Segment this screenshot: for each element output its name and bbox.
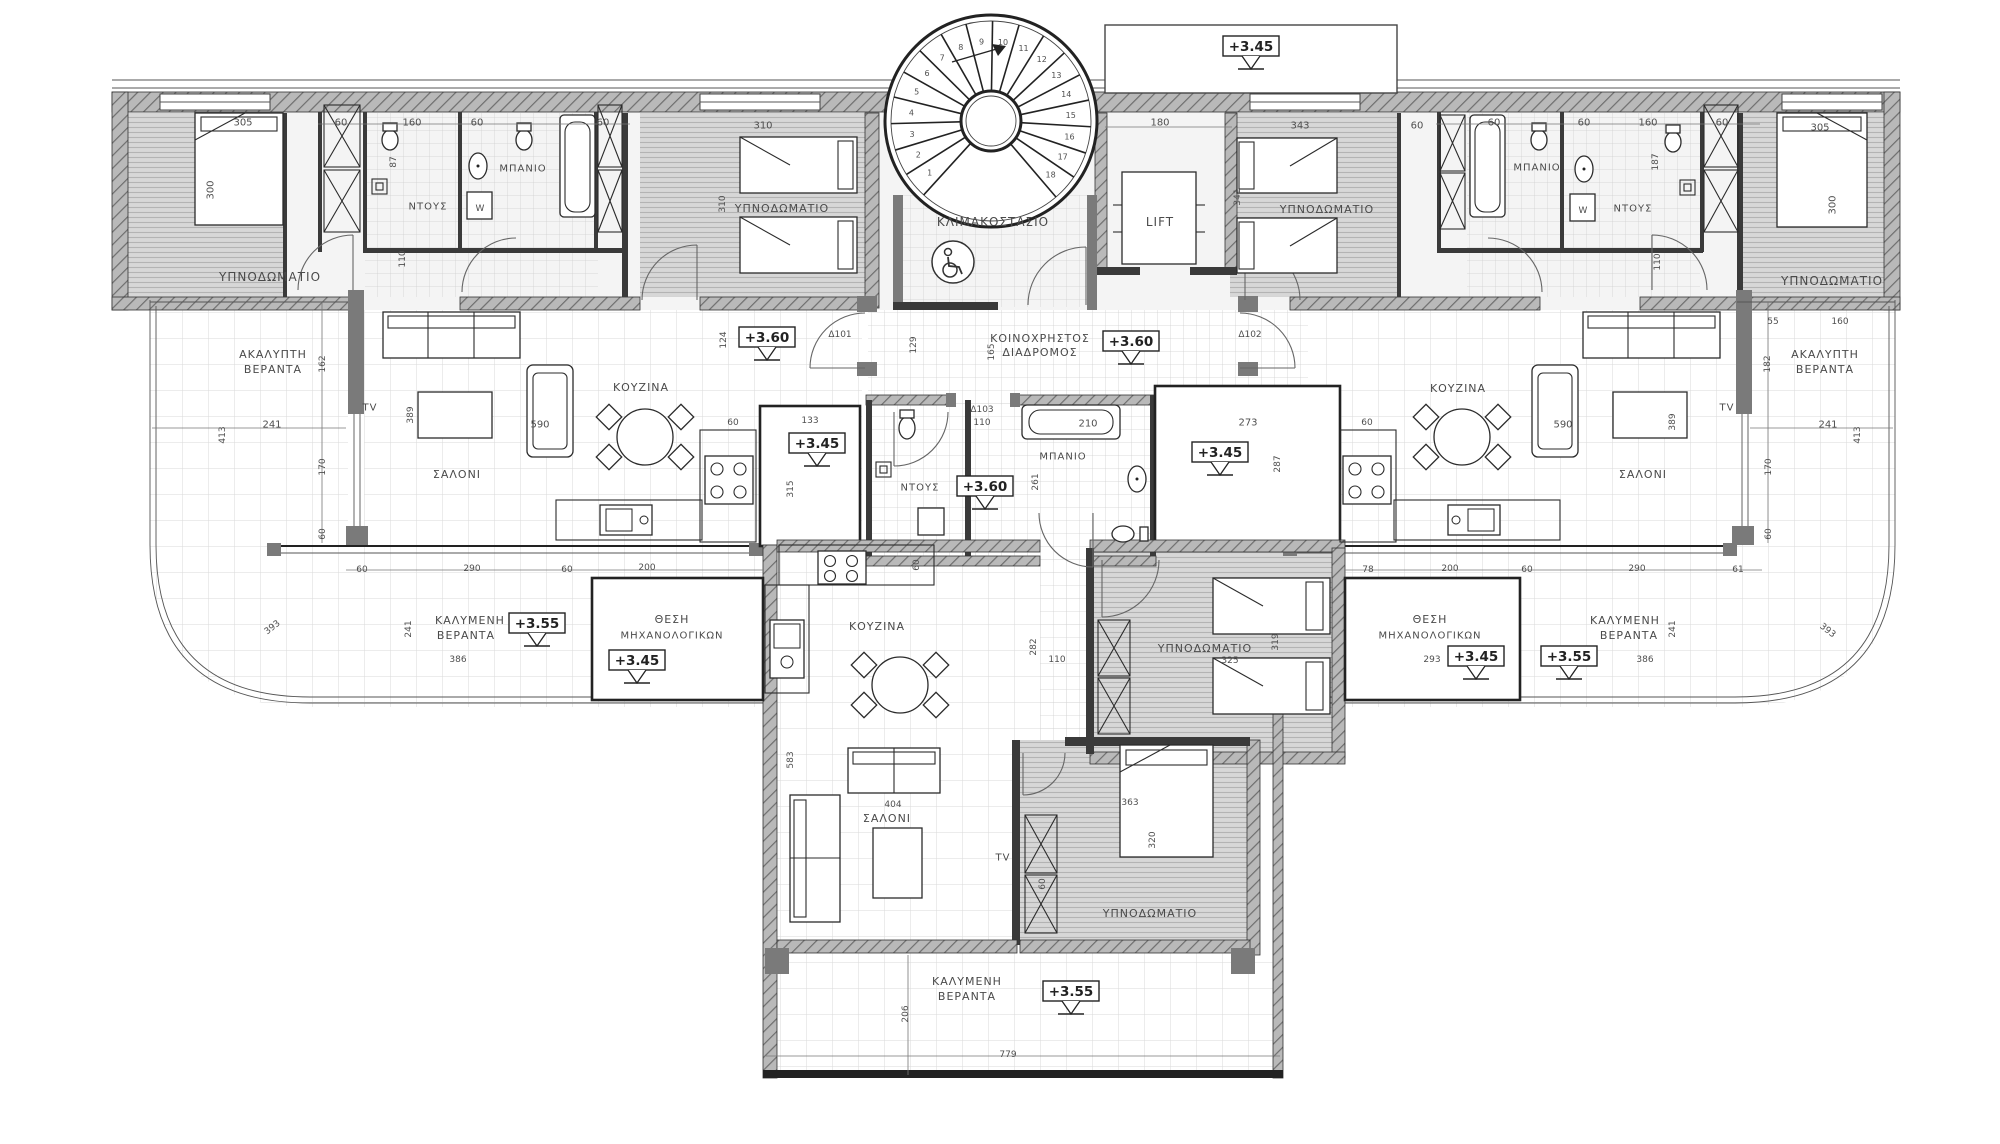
svg-text:+3.60: +3.60: [963, 479, 1008, 495]
svg-text:ΔΙΑΔΡΟΜΟΣ: ΔΙΑΔΡΟΜΟΣ: [1002, 346, 1077, 359]
dimension-label: 160: [1638, 118, 1657, 129]
svg-text:+3.45: +3.45: [795, 436, 840, 452]
storage-room: [1155, 386, 1340, 542]
dimension-label: 305: [233, 118, 252, 129]
svg-text:ΥΠΝΟΔΩΜΑΤΙΟ: ΥΠΝΟΔΩΜΑΤΙΟ: [218, 270, 321, 284]
svg-text:60: 60: [1578, 118, 1591, 129]
svg-text:206: 206: [901, 1005, 911, 1022]
svg-text:TV: TV: [1719, 403, 1735, 414]
dimension-label: 60: [356, 565, 368, 575]
dimension-label: 160: [402, 118, 421, 129]
svg-text:60: 60: [1716, 118, 1729, 129]
svg-text:ΒΕΡΑΝΤΑ: ΒΕΡΑΝΤΑ: [244, 363, 302, 376]
door-label: ΔΙΑΔΡΟΜΟΣ: [1002, 346, 1077, 359]
svg-text:W: W: [1579, 206, 1588, 216]
svg-text:180: 180: [1150, 118, 1169, 129]
svg-text:78: 78: [1362, 565, 1374, 575]
room-label: ΒΕΡΑΝΤΑ: [1600, 629, 1658, 642]
room-label: ΘΕΣΗ: [1413, 613, 1448, 626]
svg-text:+3.45: +3.45: [1229, 39, 1274, 55]
coffee-table: [873, 828, 922, 898]
room-label: ΚΟΥΖΙΝΑ: [849, 620, 905, 633]
toilet: [1112, 526, 1148, 542]
pantry-room: [760, 406, 860, 546]
svg-text:413: 413: [1853, 426, 1863, 443]
dimension-label: 60: [597, 118, 610, 129]
dimension-label: 389: [1668, 413, 1678, 430]
dimension-label: 210: [1078, 419, 1097, 430]
dimension-label: 293: [1423, 655, 1440, 665]
svg-text:241: 241: [1818, 420, 1837, 431]
stair-step-number: 2: [916, 150, 921, 159]
room-label: ΣΑΛΟΝΙ: [863, 812, 911, 825]
dimension-label: 61: [1732, 565, 1743, 575]
svg-text:60: 60: [335, 118, 348, 129]
svg-text:60: 60: [1361, 418, 1373, 428]
stair-step-number: 17: [1058, 153, 1068, 162]
room-label: ΘΕΣΗ: [655, 613, 690, 626]
dimension-label: 60: [1411, 121, 1424, 132]
spiral-staircase: 123456789101112131415161718: [885, 15, 1097, 227]
svg-text:ΥΠΝΟΔΩΜΑΤΙΟ: ΥΠΝΟΔΩΜΑΤΙΟ: [1780, 274, 1883, 288]
dimension-label: 386: [1636, 655, 1653, 665]
dimension-label: 87: [389, 156, 399, 167]
dimension-label: 300: [206, 180, 217, 199]
svg-text:241: 241: [404, 620, 414, 637]
room-label: W: [476, 204, 485, 214]
svg-text:170: 170: [318, 458, 328, 475]
stair-step-number: 16: [1064, 132, 1074, 141]
dimension-label: 300: [1828, 195, 1839, 214]
svg-text:+3.60: +3.60: [745, 330, 790, 346]
svg-text:162: 162: [318, 355, 328, 372]
twin-bed: [740, 137, 857, 193]
svg-text:ΜΗΧΑΝΟΛΟΓΙΚΩΝ: ΜΗΧΑΝΟΛΟΓΙΚΩΝ: [620, 631, 723, 642]
room-label: ΜΗΧΑΝΟΛΟΓΙΚΩΝ: [1378, 631, 1481, 642]
svg-text:ΚΛΙΜΑΚΟΣΤΑΣΙΟ: ΚΛΙΜΑΚΟΣΤΑΣΙΟ: [937, 215, 1049, 229]
room-label: ΚΑΛΥΜΕΝΗ: [1590, 614, 1660, 627]
svg-text:60: 60: [356, 565, 368, 575]
svg-text:ΚΟΥΖΙΝΑ: ΚΟΥΖΙΝΑ: [849, 620, 905, 633]
dimension-label: 200: [1441, 564, 1458, 574]
stair-step-number: 7: [940, 54, 945, 63]
svg-text:779: 779: [999, 1050, 1016, 1060]
svg-text:ΚΟΥΖΙΝΑ: ΚΟΥΖΙΝΑ: [1430, 382, 1486, 395]
dimension-label: 413: [1853, 426, 1863, 443]
room-label: ΥΠΝΟΔΩΜΑΤΙΟ: [1780, 274, 1883, 288]
stair-step-number: 5: [914, 88, 919, 97]
dimension-label: 206: [901, 1005, 911, 1022]
svg-text:129: 129: [909, 336, 919, 353]
svg-text:110: 110: [1048, 655, 1065, 665]
dimension-label: 241: [262, 420, 281, 431]
room-label: ΚΛΙΜΑΚΟΣΤΑΣΙΟ: [937, 215, 1049, 229]
room-label: ΜΠΑΝΙΟ: [499, 164, 546, 175]
svg-text:60: 60: [318, 528, 328, 540]
twin-bed: [1237, 138, 1337, 193]
dimension-label: 241: [404, 620, 414, 637]
svg-text:ΒΕΡΑΝΤΑ: ΒΕΡΑΝΤΑ: [437, 629, 495, 642]
svg-text:+3.45: +3.45: [1198, 445, 1243, 461]
washbasin: [469, 153, 487, 179]
svg-text:110: 110: [398, 250, 408, 267]
svg-text:273: 273: [1238, 418, 1257, 429]
stair-tread-edge: [991, 21, 992, 91]
svg-text:ΜΗΧΑΝΟΛΟΓΙΚΩΝ: ΜΗΧΑΝΟΛΟΓΙΚΩΝ: [1378, 631, 1481, 642]
room-label: ΝΤΟΥΣ: [1614, 204, 1653, 215]
svg-text:290: 290: [463, 564, 480, 574]
dimension-label: 180: [1150, 118, 1169, 129]
twin-bed: [1213, 658, 1330, 714]
svg-text:ΣΑΛΟΝΙ: ΣΑΛΟΝΙ: [1619, 468, 1667, 481]
svg-text:LIFT: LIFT: [1146, 215, 1174, 229]
svg-text:160: 160: [1638, 118, 1657, 129]
svg-text:ΚΑΛΥΜΕΝΗ: ΚΑΛΥΜΕΝΗ: [435, 614, 505, 627]
svg-text:ΘΕΣΗ: ΘΕΣΗ: [1413, 613, 1448, 626]
sink: [1448, 505, 1500, 535]
svg-text:305: 305: [1810, 123, 1829, 134]
svg-text:ΥΠΝΟΔΩΜΑΤΙΟ: ΥΠΝΟΔΩΜΑΤΙΟ: [1279, 203, 1374, 216]
armchair: [1532, 365, 1578, 457]
svg-text:ΘΕΣΗ: ΘΕΣΗ: [655, 613, 690, 626]
svg-text:61: 61: [1732, 565, 1743, 575]
bottom-veranda-floor: [763, 945, 1283, 1078]
svg-text:60: 60: [561, 565, 573, 575]
dimension-label: 60: [1488, 118, 1501, 129]
svg-text:389: 389: [406, 406, 416, 423]
svg-text:Δ102: Δ102: [1238, 330, 1261, 340]
svg-text:110: 110: [973, 418, 990, 428]
room-label: ΜΠΑΝΙΟ: [1513, 163, 1560, 174]
room-label: ΒΕΡΑΝΤΑ: [1796, 363, 1854, 376]
room-label: ΥΠΝΟΔΩΜΑΤΙΟ: [734, 202, 829, 215]
svg-text:160: 160: [1831, 317, 1848, 327]
dimension-label: 386: [449, 655, 466, 665]
twin-bed: [740, 217, 857, 273]
washbasin: [1128, 466, 1146, 492]
dimension-label: 60: [471, 118, 484, 129]
toilet: [1531, 123, 1547, 150]
svg-text:ΒΕΡΑΝΤΑ: ΒΕΡΑΝΤΑ: [938, 990, 996, 1003]
door-label: Δ103: [970, 405, 993, 415]
dimension-label: 133: [801, 416, 818, 426]
dimension-label: 273: [1238, 418, 1257, 429]
toilet: [899, 410, 915, 439]
bed: [195, 113, 283, 225]
svg-text:363: 363: [1121, 798, 1138, 808]
dimension-label: 310: [753, 121, 772, 132]
dimension-label: 779: [999, 1050, 1016, 1060]
svg-text:386: 386: [1636, 655, 1653, 665]
svg-text:ΒΕΡΑΝΤΑ: ΒΕΡΑΝΤΑ: [1600, 629, 1658, 642]
stove: [705, 456, 753, 504]
sink: [600, 505, 652, 535]
svg-text:320: 320: [1148, 831, 1158, 848]
room-label: ΚΑΛΥΜΕΝΗ: [435, 614, 505, 627]
svg-text:W: W: [476, 204, 485, 214]
dimension-label: 60: [335, 118, 348, 129]
room-label: ΑΚΑΛΥΠΤΗ: [1791, 348, 1859, 361]
svg-text:160: 160: [402, 118, 421, 129]
stair-step-number: 4: [909, 108, 914, 117]
toilet: [516, 123, 532, 150]
floor-plan-page: 123456789101112131415161718 305300ΥΠΝΟΔΩ…: [0, 0, 2000, 1140]
svg-text:319: 319: [1271, 633, 1281, 650]
svg-text:Δ103: Δ103: [970, 405, 993, 415]
svg-text:165: 165: [987, 343, 997, 360]
dimension-label: 110: [973, 418, 990, 428]
dimension-label: 389: [406, 406, 416, 423]
svg-text:+3.55: +3.55: [515, 616, 560, 632]
washing-machine: [918, 508, 944, 535]
dimension-label: 363: [1121, 798, 1138, 808]
room-label: ΣΑΛΟΝΙ: [1619, 468, 1667, 481]
dimension-label: 182: [1763, 355, 1773, 372]
floor-plan-drawing: 123456789101112131415161718 305300ΥΠΝΟΔΩ…: [0, 0, 2000, 1140]
svg-text:ΜΠΑΝΙΟ: ΜΠΑΝΙΟ: [1039, 452, 1086, 463]
stair-step-number: 13: [1051, 71, 1061, 80]
svg-text:386: 386: [449, 655, 466, 665]
room-label: ΒΕΡΑΝΤΑ: [244, 363, 302, 376]
dimension-label: 60: [1716, 118, 1729, 129]
svg-text:287: 287: [1273, 455, 1283, 472]
svg-text:60: 60: [471, 118, 484, 129]
svg-text:60: 60: [597, 118, 610, 129]
dimension-label: 160: [1831, 317, 1848, 327]
svg-text:ΑΚΑΛΥΠΤΗ: ΑΚΑΛΥΠΤΗ: [239, 348, 307, 361]
svg-text:+3.55: +3.55: [1547, 649, 1592, 665]
dimension-label: 110: [1048, 655, 1065, 665]
washbasin: [1575, 156, 1593, 182]
svg-text:200: 200: [638, 563, 655, 573]
svg-text:60: 60: [912, 559, 922, 571]
stove: [818, 551, 866, 584]
sofa: [383, 312, 520, 358]
room-label: TV: [1719, 403, 1735, 414]
stair-step-number: 3: [909, 130, 914, 139]
svg-text:310: 310: [753, 121, 772, 132]
room-label: ΜΗΧΑΝΟΛΟΓΙΚΩΝ: [620, 631, 723, 642]
dimension-label: 110: [398, 250, 408, 267]
svg-text:310: 310: [718, 195, 728, 212]
svg-text:ΥΠΝΟΔΩΜΑΤΙΟ: ΥΠΝΟΔΩΜΑΤΙΟ: [734, 202, 829, 215]
stair-step-number: 8: [958, 43, 963, 52]
dimension-label: 241: [1818, 420, 1837, 431]
dimension-label: 590: [1553, 420, 1572, 431]
dimension-label: 60: [561, 565, 573, 575]
door-label: Δ101: [828, 330, 851, 340]
svg-text:ΑΚΑΛΥΠΤΗ: ΑΚΑΛΥΠΤΗ: [1791, 348, 1859, 361]
dimension-label: 282: [1029, 638, 1039, 655]
svg-text:182: 182: [1763, 355, 1773, 372]
svg-text:ΚΑΛΥΜΕΝΗ: ΚΑΛΥΜΕΝΗ: [932, 975, 1002, 988]
dimension-label: 60: [1764, 528, 1774, 540]
svg-text:ΜΠΑΝΙΟ: ΜΠΑΝΙΟ: [1513, 163, 1560, 174]
svg-text:60: 60: [727, 418, 739, 428]
stair-step-number: 12: [1037, 55, 1047, 64]
room-label: ΒΕΡΑΝΤΑ: [437, 629, 495, 642]
svg-text:590: 590: [1553, 420, 1572, 431]
twin-bed: [1213, 578, 1330, 634]
svg-text:404: 404: [884, 800, 901, 810]
dimension-label: 404: [884, 800, 901, 810]
svg-text:341: 341: [1233, 188, 1243, 205]
svg-text:590: 590: [530, 420, 549, 431]
svg-text:87: 87: [389, 156, 399, 167]
stair-step-number: 9: [979, 38, 984, 47]
svg-text:413: 413: [218, 426, 228, 443]
sink: [770, 620, 804, 678]
dimension-label: 60: [1578, 118, 1591, 129]
coffee-table: [418, 392, 492, 438]
svg-text:+3.60: +3.60: [1109, 334, 1154, 350]
dimension-label: 165: [987, 343, 997, 360]
dimension-label: 60: [1038, 878, 1048, 890]
svg-text:ΒΕΡΑΝΤΑ: ΒΕΡΑΝΤΑ: [1796, 363, 1854, 376]
bathtub: [560, 115, 595, 217]
dimension-label: 319: [1271, 633, 1281, 650]
door-label: Δ102: [1238, 330, 1261, 340]
svg-text:ΚΟΙΝΟΧΡΗΣΤΟΣ: ΚΟΙΝΟΧΡΗΣΤΟΣ: [990, 332, 1090, 345]
svg-text:325: 325: [1221, 656, 1238, 666]
room-label: ΑΚΑΛΥΠΤΗ: [239, 348, 307, 361]
dimension-label: 315: [786, 480, 796, 497]
svg-text:ΚΟΥΖΙΝΑ: ΚΟΥΖΙΝΑ: [613, 381, 669, 394]
svg-text:170: 170: [1764, 458, 1774, 475]
room-label: TV: [995, 853, 1011, 864]
stair-step-number: 15: [1066, 111, 1076, 120]
svg-text:ΜΠΑΝΙΟ: ΜΠΑΝΙΟ: [499, 164, 546, 175]
sofa: [790, 795, 840, 922]
svg-text:ΣΑΛΟΝΙ: ΣΑΛΟΝΙ: [863, 812, 911, 825]
room-label: ΜΠΑΝΙΟ: [1039, 452, 1086, 463]
dimension-label: 343: [1290, 121, 1309, 132]
dimension-label: 413: [218, 426, 228, 443]
dimension-label: 261: [1031, 473, 1041, 490]
dimension-label: 305: [1810, 123, 1829, 134]
svg-text:124: 124: [719, 331, 729, 348]
svg-text:315: 315: [786, 480, 796, 497]
svg-text:290: 290: [1628, 564, 1645, 574]
room-label: ΚΟΙΝΟΧΡΗΣΤΟΣ: [990, 332, 1090, 345]
dimension-label: 287: [1273, 455, 1283, 472]
svg-text:261: 261: [1031, 473, 1041, 490]
room-label: LIFT: [1146, 215, 1174, 229]
stove: [1343, 456, 1391, 504]
stair-step-number: 6: [925, 69, 930, 78]
room-label: ΚΑΛΥΜΕΝΗ: [932, 975, 1002, 988]
dimension-label: 320: [1148, 831, 1158, 848]
svg-text:305: 305: [233, 118, 252, 129]
room-label: ΥΠΝΟΔΩΜΑΤΙΟ: [218, 270, 321, 284]
svg-text:200: 200: [1441, 564, 1458, 574]
room-label: ΥΠΝΟΔΩΜΑΤΙΟ: [1157, 642, 1252, 655]
stair-step-number: 18: [1046, 170, 1056, 179]
sofa: [1583, 312, 1720, 358]
svg-text:282: 282: [1029, 638, 1039, 655]
dimension-label: 590: [530, 420, 549, 431]
dimension-label: 241: [1668, 620, 1678, 637]
svg-text:TV: TV: [995, 853, 1011, 864]
dimension-label: 60: [1361, 418, 1373, 428]
dimension-label: 200: [638, 563, 655, 573]
svg-text:ΝΤΟΥΣ: ΝΤΟΥΣ: [409, 202, 448, 213]
bathtub: [1470, 115, 1505, 217]
room-label: ΥΠΝΟΔΩΜΑΤΙΟ: [1102, 907, 1197, 920]
svg-text:241: 241: [262, 420, 281, 431]
svg-text:300: 300: [206, 180, 217, 199]
room-label: ΝΤΟΥΣ: [409, 202, 448, 213]
svg-text:241: 241: [1668, 620, 1678, 637]
svg-text:110: 110: [1653, 253, 1663, 270]
svg-text:60: 60: [1411, 121, 1424, 132]
svg-text:389: 389: [1668, 413, 1678, 430]
room-label: ΚΟΥΖΙΝΑ: [613, 381, 669, 394]
dimension-label: 60: [727, 418, 739, 428]
svg-text:ΥΠΝΟΔΩΜΑΤΙΟ: ΥΠΝΟΔΩΜΑΤΙΟ: [1157, 642, 1252, 655]
room-label: TV: [362, 403, 378, 414]
bathtub: [1022, 405, 1120, 439]
stair-step-number: 1: [927, 168, 932, 177]
dimension-label: 170: [318, 458, 328, 475]
dimension-label: 325: [1221, 656, 1238, 666]
svg-text:ΥΠΝΟΔΩΜΑΤΙΟ: ΥΠΝΟΔΩΜΑΤΙΟ: [1102, 907, 1197, 920]
dimension-label: 60: [1521, 565, 1533, 575]
wheelchair-icon: [932, 241, 974, 283]
svg-text:ΝΤΟΥΣ: ΝΤΟΥΣ: [901, 483, 940, 494]
room-label: ΚΟΥΖΙΝΑ: [1430, 382, 1486, 395]
room-label: ΝΤΟΥΣ: [901, 483, 940, 494]
dimension-label: 110: [1653, 253, 1663, 270]
stair-step-number: 11: [1018, 44, 1028, 53]
svg-text:+3.45: +3.45: [615, 653, 660, 669]
svg-text:TV: TV: [362, 403, 378, 414]
svg-text:55: 55: [1767, 317, 1778, 327]
dimension-label: 60: [912, 559, 922, 571]
svg-text:187: 187: [1651, 153, 1661, 170]
svg-text:ΝΤΟΥΣ: ΝΤΟΥΣ: [1614, 204, 1653, 215]
room-label: W: [1579, 206, 1588, 216]
svg-text:583: 583: [786, 751, 796, 768]
dimension-label: 78: [1362, 565, 1374, 575]
sofa: [848, 748, 940, 793]
floor-fills: [112, 92, 1900, 1078]
twin-bed: [1237, 218, 1337, 273]
dimension-label: 187: [1651, 153, 1661, 170]
toilet: [1665, 125, 1681, 152]
armchair: [527, 365, 573, 457]
dimension-label: 341: [1233, 188, 1243, 205]
room-label: ΣΑΛΟΝΙ: [433, 468, 481, 481]
svg-text:300: 300: [1828, 195, 1839, 214]
svg-text:60: 60: [1764, 528, 1774, 540]
dimension-label: 162: [318, 355, 328, 372]
svg-text:293: 293: [1423, 655, 1440, 665]
svg-text:210: 210: [1078, 419, 1097, 430]
dimension-label: 290: [1628, 564, 1645, 574]
dimension-label: 55: [1767, 317, 1778, 327]
room-label: ΒΕΡΑΝΤΑ: [938, 990, 996, 1003]
svg-text:343: 343: [1290, 121, 1309, 132]
dimension-label: 129: [909, 336, 919, 353]
svg-text:60: 60: [1038, 878, 1048, 890]
svg-text:60: 60: [1521, 565, 1533, 575]
svg-text:ΚΑΛΥΜΕΝΗ: ΚΑΛΥΜΕΝΗ: [1590, 614, 1660, 627]
dimension-label: 170: [1764, 458, 1774, 475]
room-label: ΥΠΝΟΔΩΜΑΤΙΟ: [1279, 203, 1374, 216]
svg-text:+3.55: +3.55: [1049, 984, 1094, 1000]
svg-text:ΣΑΛΟΝΙ: ΣΑΛΟΝΙ: [433, 468, 481, 481]
